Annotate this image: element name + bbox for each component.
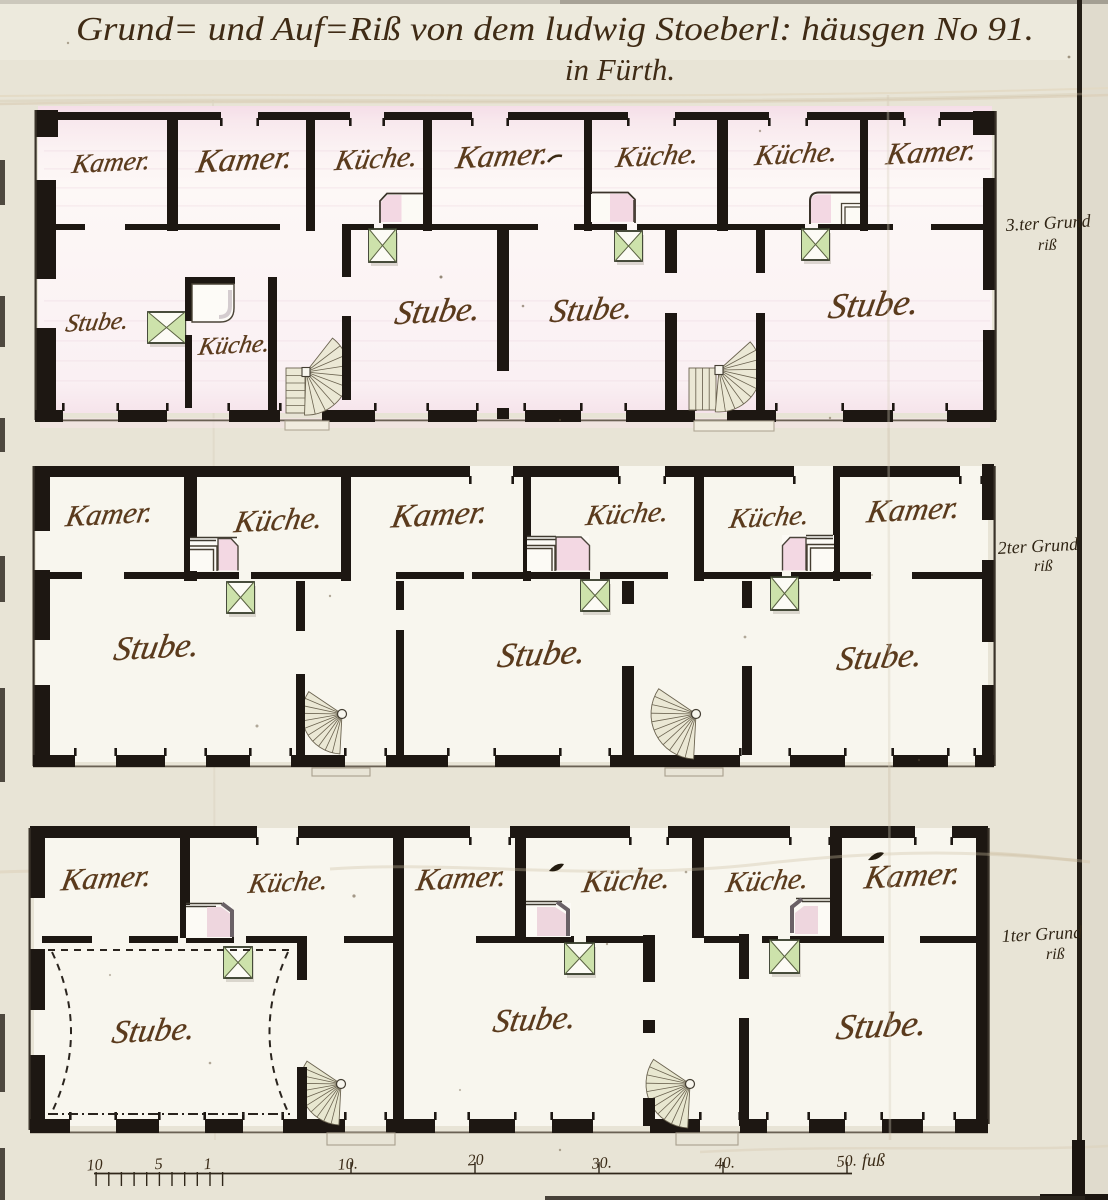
svg-text:Stube.: Stube. <box>834 1003 931 1047</box>
svg-text:riß: riß <box>1046 946 1065 963</box>
svg-text:Kamer.: Kamer. <box>861 855 964 896</box>
svg-text:riß: riß <box>1038 237 1057 254</box>
svg-text:1ter Grund: 1ter Grund <box>1001 922 1083 946</box>
svg-text:Kamer.: Kamer. <box>863 490 963 530</box>
svg-text:Stube.: Stube. <box>834 636 926 678</box>
svg-text:Stube.: Stube. <box>490 999 579 1040</box>
svg-text:Küche.: Küche. <box>231 500 326 539</box>
svg-text:Stube.: Stube. <box>109 1010 198 1051</box>
svg-text:Küche.: Küche. <box>613 138 702 174</box>
svg-text:Stube.: Stube. <box>111 626 203 668</box>
svg-text:2ter Grund: 2ter Grund <box>997 534 1079 558</box>
svg-text:Kamer.: Kamer. <box>58 858 155 897</box>
svg-text:Kamer.: Kamer. <box>452 136 552 176</box>
svg-text:Kamer.: Kamer. <box>413 858 510 897</box>
svg-text:Kamer.: Kamer. <box>883 132 980 171</box>
svg-text:Küche.: Küche. <box>752 136 841 172</box>
svg-text:20: 20 <box>467 1151 484 1169</box>
svg-text:Kamer.: Kamer. <box>62 495 156 533</box>
svg-text:Küche.: Küche. <box>332 141 421 177</box>
svg-text:Küche.: Küche. <box>723 863 812 899</box>
svg-text:Stube.: Stube. <box>392 290 484 332</box>
svg-text:Küche.: Küche. <box>726 500 812 535</box>
svg-text:Stube.: Stube. <box>826 282 923 326</box>
svg-text:in Fürth.: in Fürth. <box>565 52 675 87</box>
svg-text:Küche.: Küche. <box>245 865 331 900</box>
svg-text:Grund= und Auf=Riß von dem lud: Grund= und Auf=Riß von dem ludwig Stoebe… <box>76 11 1034 48</box>
svg-text:Stube.: Stube. <box>495 631 589 675</box>
svg-text:1: 1 <box>203 1156 212 1174</box>
svg-text:10.: 10. <box>337 1155 358 1173</box>
svg-text:Küche.: Küche. <box>579 860 674 899</box>
svg-text:10: 10 <box>86 1156 103 1174</box>
svg-text:50.: 50. <box>836 1152 857 1170</box>
svg-text:40.: 40. <box>714 1154 735 1172</box>
svg-text:Küche.: Küche. <box>583 496 672 532</box>
svg-text:Stube.: Stube. <box>547 289 636 330</box>
svg-text:Kamer.: Kamer. <box>388 494 491 535</box>
svg-text:5: 5 <box>154 1156 163 1174</box>
svg-text:30.: 30. <box>590 1154 612 1172</box>
svg-text:Küche.: Küche. <box>196 329 273 360</box>
svg-text:Stube.: Stube. <box>64 307 131 338</box>
svg-text:riß: riß <box>1034 558 1053 575</box>
svg-text:Kamer.: Kamer. <box>193 139 296 180</box>
svg-text:Kamer.: Kamer. <box>69 145 153 179</box>
svg-text:fuß: fuß <box>862 1150 885 1170</box>
